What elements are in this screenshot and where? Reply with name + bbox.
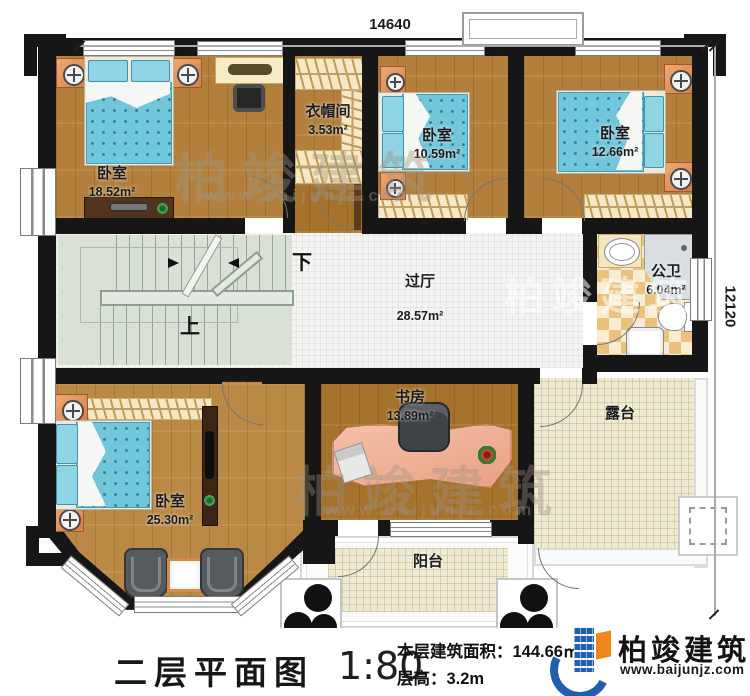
- wall-bathroom-left-a: [583, 234, 597, 302]
- lamp-icon: [59, 509, 81, 531]
- window-bedroom1: [83, 40, 175, 56]
- wall-hall-top-c: [506, 218, 542, 234]
- bedroom3-closet: [584, 194, 694, 220]
- plant-pot-icon: [304, 584, 332, 612]
- window-left-upper: [20, 168, 56, 236]
- armchair: [200, 548, 244, 598]
- nightstand: [380, 66, 406, 94]
- bed4-pillow: [56, 465, 78, 505]
- dimension-top-value: 14640: [352, 16, 428, 33]
- stair-handrail: [100, 290, 294, 306]
- window-bay-bottom: [134, 596, 240, 613]
- window-bay-top-inner: [469, 19, 577, 39]
- room-label-bedroom4: 卧室25.30m²: [128, 492, 212, 528]
- bed1-pillow: [131, 60, 170, 82]
- stair-up-label: 上: [180, 310, 200, 339]
- window-study-balcony: [390, 522, 492, 537]
- wall-bedroom2-3: [508, 38, 524, 234]
- room-label-cloakroom: 衣帽间3.53m²: [290, 102, 366, 138]
- tv-icon: [205, 431, 214, 479]
- side-table: [167, 558, 203, 592]
- room-label-study: 书房13.89m²: [362, 388, 458, 424]
- stair-down-label: 下: [292, 246, 312, 275]
- stair-arrow-left: [228, 258, 239, 268]
- terrace-column-box: [678, 496, 738, 556]
- dimension-line-right: [714, 46, 716, 616]
- room-label-bedroom1: 卧室18.52m²: [62, 164, 162, 200]
- floor-plan: 上 下: [0, 0, 750, 696]
- wall-hall-top-b: [378, 218, 466, 234]
- dimension-line-top: [80, 45, 708, 47]
- wall-hall-bottom-a: [38, 368, 222, 384]
- lamp-icon: [670, 70, 692, 92]
- stair-arrow-right: [168, 258, 179, 268]
- plant-icon: [157, 203, 168, 214]
- window-bedroom1-vanity: [197, 41, 283, 56]
- nightstand: [664, 162, 694, 192]
- bedroom1-desk: [84, 197, 174, 220]
- logo-site-text: www.baijunjz.com: [620, 662, 745, 677]
- wall-bathroom-bottom: [583, 355, 708, 372]
- cloakroom-closet-bottom: [295, 150, 363, 184]
- terrace-column-dash: [689, 507, 727, 545]
- wall-left-a: [38, 38, 56, 170]
- nightstand: [664, 64, 694, 94]
- shower-drain-icon: [681, 245, 687, 251]
- dimension-right-value: 12120: [722, 275, 739, 339]
- wall-study-bottom-b: [378, 520, 390, 536]
- armchair: [124, 548, 168, 598]
- lamp-icon: [62, 400, 84, 422]
- wall-study-bottom-c: [490, 520, 534, 536]
- wall-left-c: [38, 424, 56, 538]
- plan-height-line: 层高：3.2m: [397, 665, 484, 689]
- nightstand: [380, 172, 406, 200]
- toilet-bowl-icon: [658, 303, 687, 331]
- lamp-icon: [386, 179, 405, 198]
- vanity-desk: [215, 57, 285, 84]
- logo-accent-icon: [596, 630, 611, 659]
- lamp-icon: [63, 64, 85, 86]
- wall-hall-bottom-c: [582, 368, 597, 384]
- vanity-items: [228, 64, 272, 75]
- bed4-pillow: [56, 424, 78, 464]
- window-bay-top: [462, 12, 584, 46]
- lamp-icon: [177, 64, 199, 86]
- wall-hall-bottom-b: [262, 368, 540, 384]
- lamp-icon: [670, 168, 692, 190]
- cloakroom-closet-top: [295, 58, 363, 90]
- plant-pot-icon: [520, 584, 548, 612]
- room-label-bedroom3: 卧室12.66m²: [570, 124, 660, 160]
- wall-hall-top-d: [582, 218, 708, 234]
- room-label-balcony: 阳台: [392, 552, 464, 572]
- nightstand: [170, 58, 202, 88]
- monitor-icon: [109, 202, 149, 212]
- wall-right-a: [692, 38, 708, 260]
- window-left-lower: [20, 358, 56, 424]
- room-label-terrace: 露台: [588, 404, 652, 424]
- wall-junction-bay: [303, 520, 335, 564]
- wall-hall-top-a: [38, 218, 245, 234]
- room-label-bedroom2: 卧室10.59m²: [395, 126, 479, 162]
- lamp-icon: [386, 73, 405, 92]
- window-bedroom3: [575, 40, 661, 56]
- room-label-hall: 过厅28.57m²: [372, 272, 468, 324]
- wall-study-left: [305, 368, 321, 536]
- plan-title: 二层平面图: [112, 646, 324, 696]
- corner-bracket-ml-h: [26, 553, 68, 566]
- brand-logo: [548, 624, 618, 690]
- plant-icon: [478, 446, 496, 464]
- wall-left-b: [38, 236, 56, 360]
- bed1-pillow: [88, 60, 128, 82]
- wall-study-right: [518, 368, 534, 544]
- corner-bracket-tl-v: [24, 34, 37, 76]
- vanity-chair: [233, 84, 265, 112]
- room-label-bathroom: 公卫6.04m²: [630, 262, 702, 298]
- door-leaf-cloakroom: [354, 184, 361, 230]
- logo-tower-icon: [574, 626, 594, 672]
